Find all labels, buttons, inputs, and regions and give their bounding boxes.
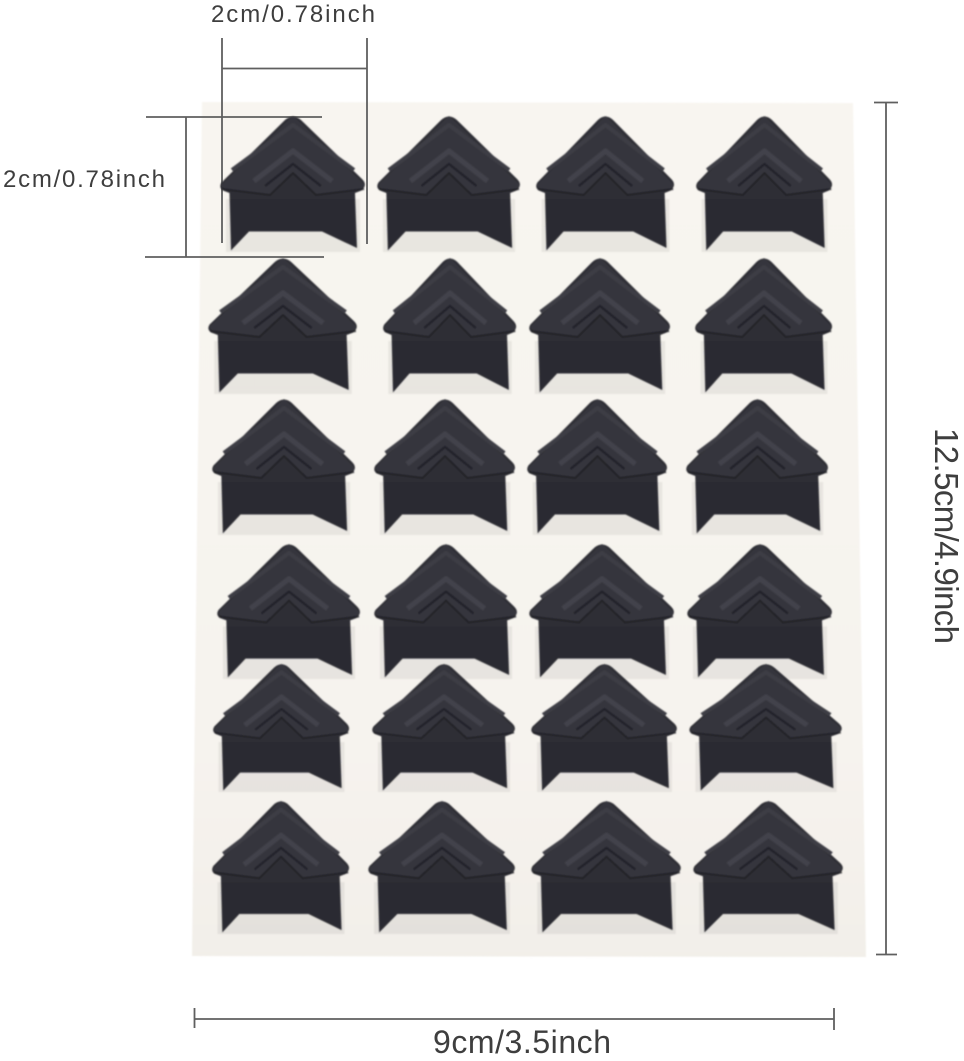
svg-text:12.5cm/4.9inch: 12.5cm/4.9inch	[928, 428, 964, 644]
svg-text:9cm/3.5inch: 9cm/3.5inch	[433, 1024, 611, 1060]
